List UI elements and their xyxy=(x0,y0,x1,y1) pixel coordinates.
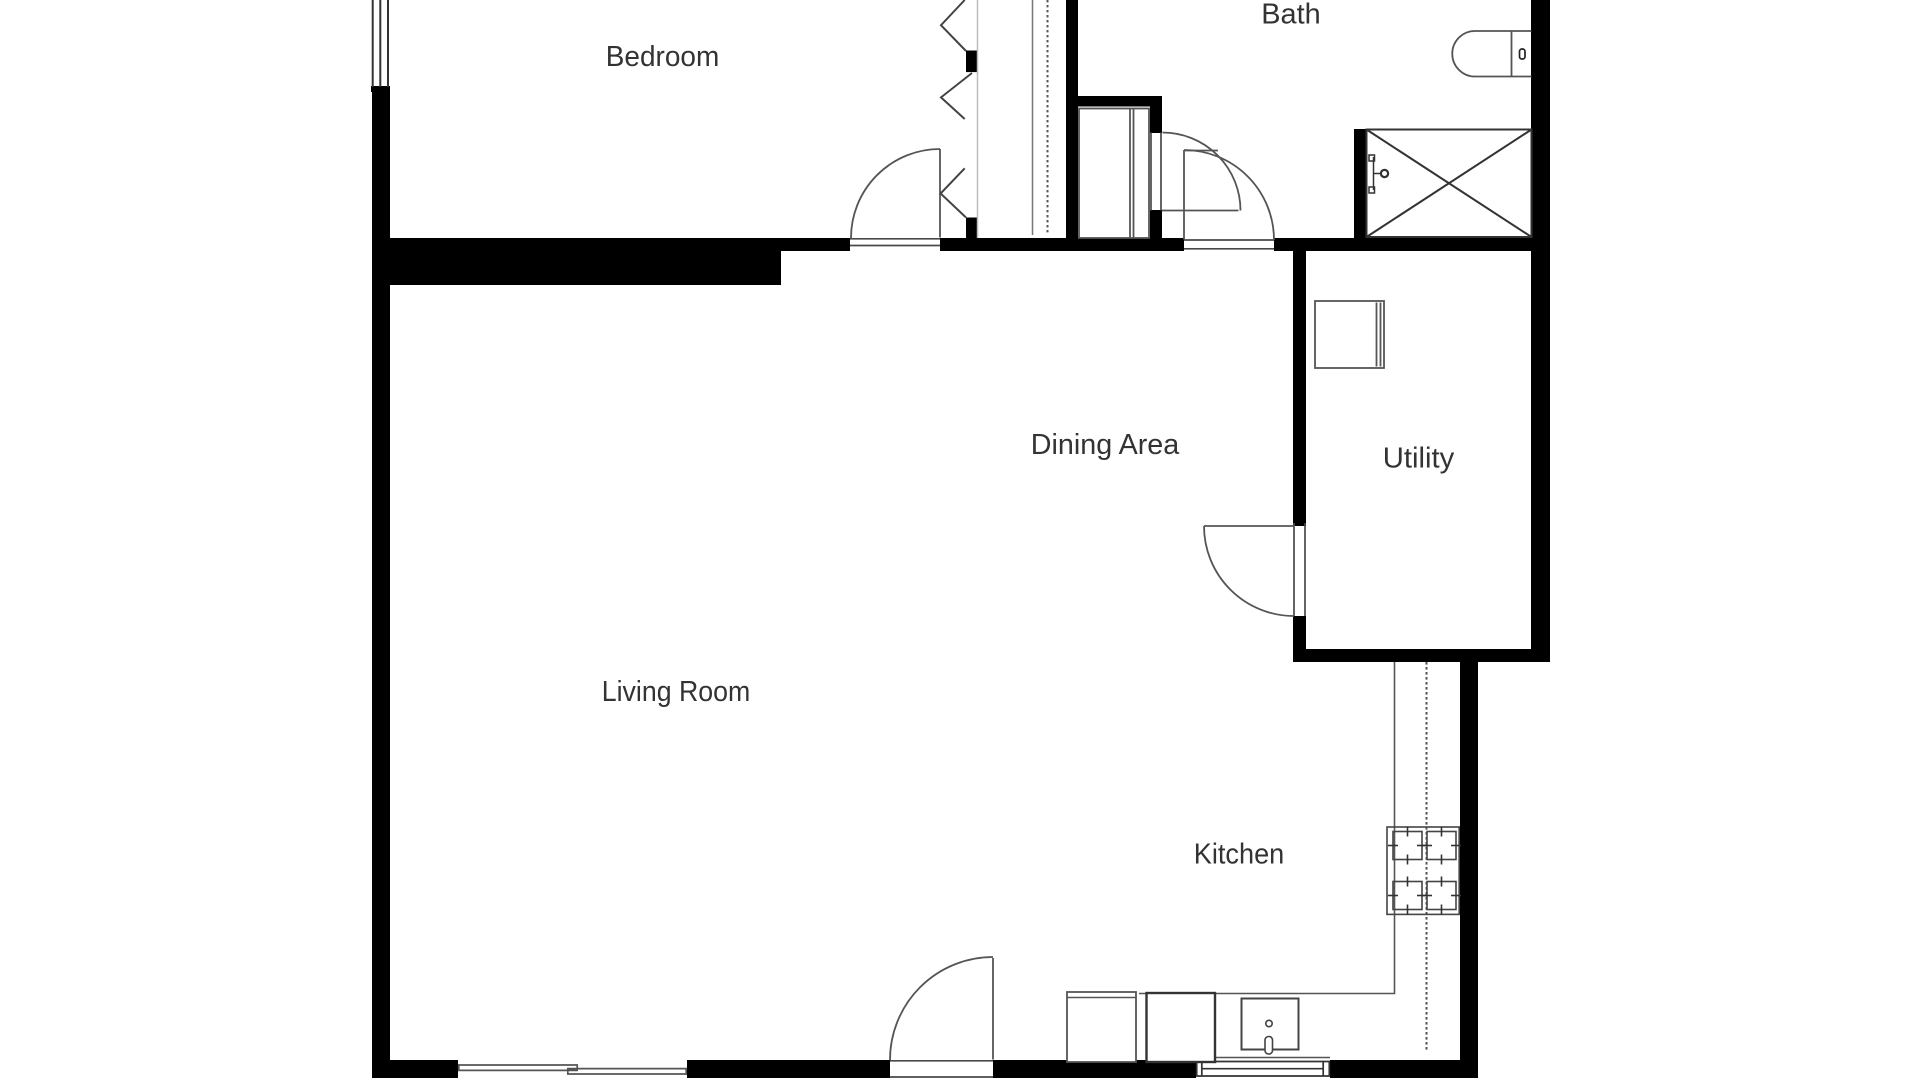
svg-text:Dining Area: Dining Area xyxy=(1031,429,1180,461)
svg-text:Bath: Bath xyxy=(1261,0,1321,31)
svg-text:Kitchen: Kitchen xyxy=(1194,839,1285,871)
svg-text:Utility: Utility xyxy=(1383,443,1455,475)
svg-text:Living Room: Living Room xyxy=(602,676,751,708)
svg-text:Bedroom: Bedroom xyxy=(606,41,720,73)
